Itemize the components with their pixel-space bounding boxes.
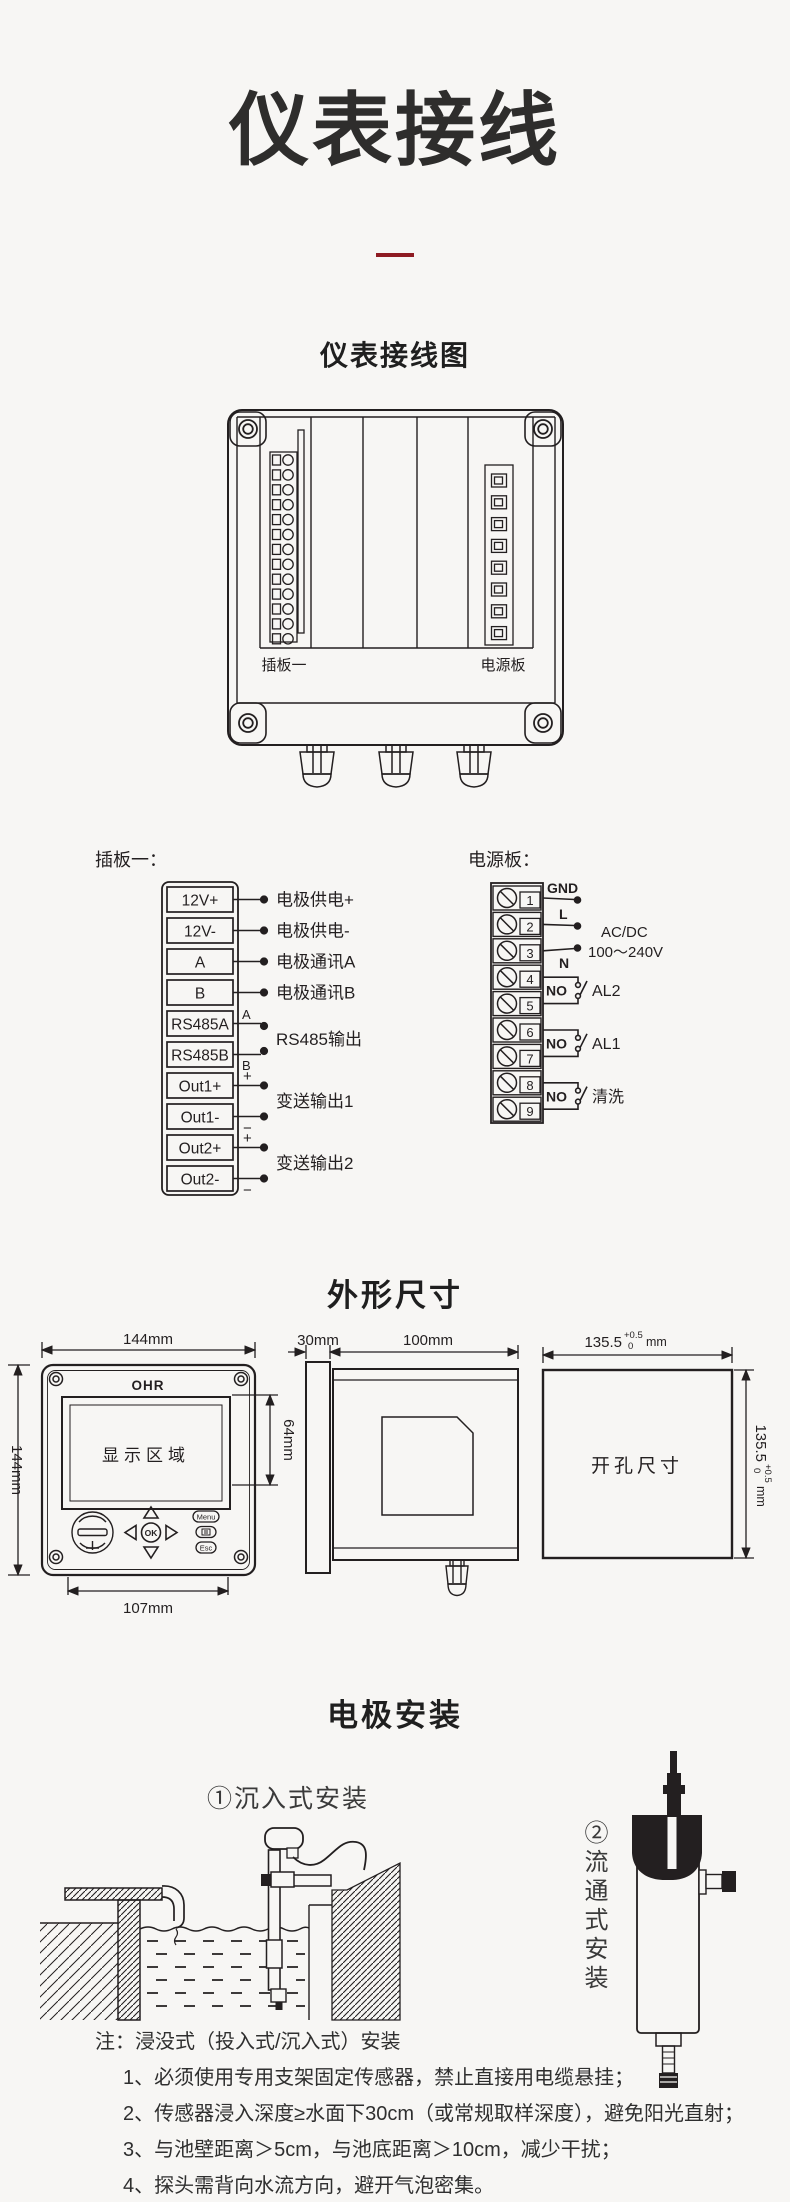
- electrode-cable: [293, 1842, 366, 1870]
- terminal-number: 6: [526, 1025, 533, 1040]
- inlet-cap: [722, 1871, 736, 1892]
- menu-button-label: Menu: [197, 1512, 216, 1521]
- side-gland: [446, 1560, 468, 1596]
- usb-dial: [72, 1512, 113, 1553]
- title-divider: [376, 253, 414, 257]
- cable: [670, 1751, 677, 1775]
- wire-tag-plus: +: [243, 1068, 252, 1085]
- acdc-label: AC/DC: [601, 924, 648, 941]
- power-terminal-diagram: 电源板： 1 2 3 4 5 6 7 8 9 GND: [425, 843, 705, 1143]
- tank-walls: [40, 1863, 400, 2020]
- power-heading: 电源板：: [468, 850, 540, 870]
- terminal-number: 9: [526, 1104, 533, 1119]
- note-item: 2、传感器浸入深度≥水面下30cm（或常规取样深度），避免阳光直射；: [123, 2096, 745, 2132]
- relay-label-clean: 清洗: [592, 1088, 624, 1106]
- power-connector: [485, 465, 513, 645]
- annotation: 变送输出2: [276, 1154, 353, 1173]
- svg-text:0: 0: [628, 1341, 633, 1352]
- cutout-dim-top: 135.5 +0.5 0 mm: [584, 1330, 666, 1352]
- corner-screws: [239, 420, 552, 732]
- svg-text:+0.5: +0.5: [762, 1464, 773, 1483]
- manual-page: 仪表接线 仪表接线图: [0, 0, 790, 2202]
- page-button-icon: [202, 1529, 210, 1535]
- terminal-label: 12V+: [182, 893, 219, 910]
- terminal-number: 8: [526, 1078, 533, 1093]
- dim-depth: 100mm: [403, 1332, 453, 1349]
- annotation: 电极供电+: [276, 891, 354, 910]
- terminal-label: B: [195, 986, 205, 1003]
- board1-heading: 插板一：: [95, 850, 167, 870]
- dimensions-section-heading: 外形尺寸: [0, 1270, 790, 1315]
- power-wires: [543, 897, 587, 1109]
- annotation: 电极供电-: [276, 922, 350, 941]
- voltage-label: 100～240V: [588, 944, 663, 961]
- terminal-label: RS485B: [171, 1048, 229, 1065]
- immersion-install-label: ①沉入式安装: [207, 1779, 369, 1815]
- terminal-number: 5: [526, 999, 533, 1014]
- terminal-label: 12V-: [184, 924, 216, 941]
- wire-tag-minus: −: [243, 1182, 252, 1199]
- page-title: 仪表接线: [0, 66, 790, 182]
- terminal-number: 1: [526, 893, 533, 908]
- panel-buttons: Menu Esc: [193, 1511, 219, 1553]
- terminal-label: Out1-: [181, 1110, 220, 1127]
- wiring-section-heading: 仪表接线图: [0, 334, 790, 374]
- front-view: OHR 显示区域 OK: [8, 1331, 297, 1617]
- board1-annotations: 电极供电+ 电极供电- 电极通讯A 电极通讯B A B RS485输出 + − …: [242, 891, 362, 1200]
- power-annotations: GND L N AC/DC 100～240V NO AL2 NO AL1 NO …: [546, 880, 663, 1106]
- display-area-label: 显示区域: [102, 1446, 190, 1465]
- dim-front-width: 144mm: [123, 1331, 173, 1348]
- no-contact-label: NO: [546, 983, 567, 999]
- svg-text:0: 0: [751, 1468, 762, 1473]
- note-item: 3、与池壁距离＞5cm，与池底距离＞10cm，减少干扰；: [123, 2132, 745, 2168]
- terminal-number: 4: [526, 972, 533, 987]
- terminal-label: Out2-: [181, 1172, 220, 1189]
- cutout-label: 开孔尺寸: [591, 1455, 683, 1477]
- brand-logo: OHR: [132, 1378, 165, 1393]
- board1-terminals: 12V+ 12V- A B RS485A RS485B Out1+ Out1- …: [167, 887, 233, 1191]
- install-notes: 注：浸没式（投入式/沉入式）安装 1、必须使用专用支架固定传感器，禁止直接用电缆…: [95, 2024, 745, 2202]
- dimension-drawings: OHR 显示区域 OK: [0, 1325, 790, 1660]
- cutout-dim-lines: [543, 1347, 754, 1558]
- power-slot-label: 电源板: [480, 656, 525, 674]
- ok-button-label: OK: [145, 1528, 159, 1538]
- svg-text:mm: mm: [646, 1335, 667, 1349]
- terminal-number: 3: [526, 946, 533, 961]
- terminal-label: Out1+: [179, 1079, 222, 1096]
- svg-text:135.5: 135.5: [584, 1334, 622, 1351]
- dim-front-height: 144mm: [8, 1445, 25, 1495]
- dim-bezel: 30mm: [297, 1332, 339, 1349]
- terminal-number: 7: [526, 1051, 533, 1066]
- no-contact-label: NO: [546, 1089, 567, 1105]
- terminal-number: 2: [526, 919, 533, 934]
- annotation: 电极通讯B: [276, 984, 355, 1003]
- cable-glands: [300, 745, 491, 787]
- no-contact-label: NO: [546, 1036, 567, 1052]
- terminal-label: RS485A: [171, 1017, 229, 1034]
- side-view: 30mm 100mm: [288, 1332, 518, 1596]
- power-terminals: 1 2 3 4 5 6 7 8 9: [493, 886, 541, 1121]
- inlet-pipe: [162, 1886, 184, 1945]
- line-label: L: [559, 906, 568, 922]
- cutout-dim-right: 135.5 +0.5 0 mm: [751, 1424, 773, 1506]
- board1-connector: [270, 430, 304, 644]
- dim-bottom-width: 107mm: [123, 1600, 173, 1617]
- esc-button-label: Esc: [200, 1543, 213, 1552]
- svg-text:+0.5: +0.5: [624, 1330, 643, 1341]
- annotation: 电极通讯A: [276, 953, 356, 972]
- wire-tag-a: A: [242, 1007, 251, 1022]
- wire-tag-plus: +: [243, 1130, 252, 1147]
- note-item: 1、必须使用专用支架固定传感器，禁止直接用电缆悬挂；: [123, 2060, 745, 2096]
- note-item: 4、探头需背向水流方向，避开气泡密集。: [123, 2168, 745, 2202]
- board1-slot-label: 插板一: [261, 656, 306, 674]
- svg-text:mm: mm: [754, 1486, 768, 1507]
- svg-text:135.5: 135.5: [752, 1424, 769, 1462]
- board1-terminal-diagram: 插板一： 12V+ 12V- A B RS485A RS485B Out1+ O…: [90, 843, 390, 1205]
- install-section-heading: 电极安装: [0, 1690, 790, 1735]
- device-wiring-diagram: 插板一 电源板: [222, 402, 572, 792]
- notes-title: 注：浸没式（投入式/沉入式）安装: [95, 2024, 745, 2060]
- terminal-label: Out2+: [179, 1141, 222, 1158]
- relay-label-al2: AL2: [592, 983, 621, 1000]
- relay-label-al1: AL1: [592, 1036, 621, 1053]
- immersion-install-drawing: [25, 1825, 410, 2025]
- dim-display-height: 64mm: [280, 1419, 297, 1461]
- neutral-label: N: [559, 955, 569, 971]
- terminal-label: A: [195, 955, 206, 972]
- gnd-label: GND: [547, 880, 578, 896]
- annotation: 变送输出1: [276, 1092, 353, 1111]
- annotation: RS485输出: [276, 1030, 362, 1049]
- cutout-view: 开孔尺寸 135.5 +0.5 0 mm 135.5 +0.5 0 mm: [543, 1330, 773, 1558]
